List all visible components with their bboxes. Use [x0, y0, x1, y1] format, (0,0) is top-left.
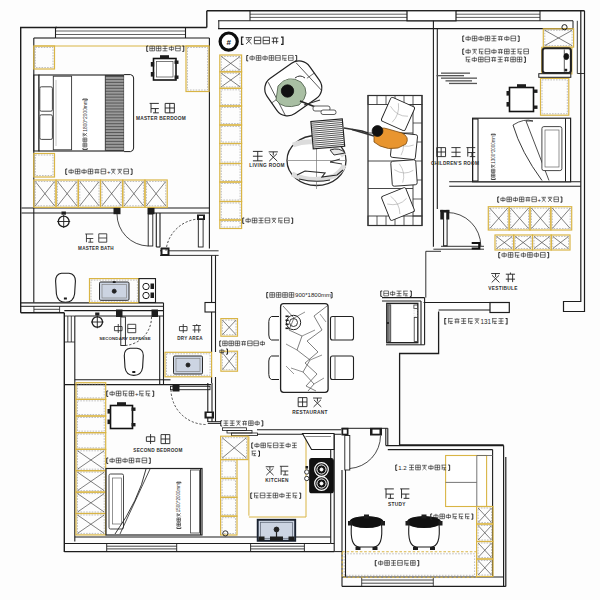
svg-text:131: 131	[481, 318, 492, 325]
svg-text:1.2: 1.2	[398, 464, 407, 471]
svg-text:+: +	[538, 197, 542, 203]
svg-text:DRY AREA: DRY AREA	[177, 336, 203, 341]
svg-text:+: +	[107, 168, 111, 175]
svg-text:900*1800mm: 900*1800mm	[295, 291, 331, 298]
svg-text:MASTER BATH: MASTER BATH	[78, 246, 114, 251]
svg-text:1500*2000mm: 1500*2000mm	[176, 483, 181, 513]
svg-text:+: +	[135, 390, 139, 397]
svg-text:RESTAURANT: RESTAURANT	[292, 410, 328, 415]
svg-text:#: #	[226, 38, 231, 47]
svg-text:SECOND BEDROOM: SECOND BEDROOM	[133, 448, 182, 453]
svg-text:KITCHEN: KITCHEN	[265, 478, 289, 483]
svg-text:MASTER BERDOOM: MASTER BERDOOM	[136, 116, 186, 121]
svg-text:CHILDREN'S ROOM: CHILDREN'S ROOM	[431, 161, 479, 166]
svg-text:LIVING ROOM: LIVING ROOM	[249, 163, 285, 168]
svg-text:STUDY: STUDY	[388, 502, 406, 507]
svg-text:SECONDARY DEFENSE: SECONDARY DEFENSE	[99, 336, 150, 341]
svg-text:1800*2000mm: 1800*2000mm	[83, 100, 88, 132]
svg-text:1300*2000mm: 1300*2000mm	[491, 135, 496, 164]
svg-text:VESTIBULE: VESTIBULE	[488, 286, 518, 291]
